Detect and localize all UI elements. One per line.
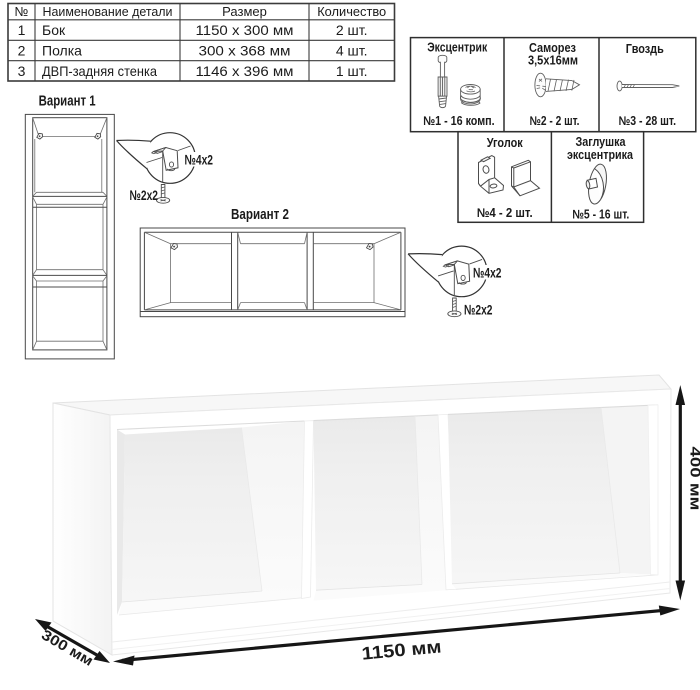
svg-text:3: 3 bbox=[18, 63, 26, 79]
svg-text:Размер: Размер bbox=[222, 4, 267, 19]
svg-text:Наименование детали: Наименование детали bbox=[43, 4, 173, 19]
svg-text:Полка: Полка bbox=[42, 42, 82, 58]
svg-text:Вариант 1: Вариант 1 bbox=[39, 93, 96, 109]
svg-text:Бок: Бок bbox=[42, 22, 66, 38]
svg-text:1: 1 bbox=[18, 22, 26, 38]
svg-text:3,5х16мм: 3,5х16мм bbox=[528, 53, 578, 67]
svg-text:300 x 368 мм: 300 x 368 мм bbox=[199, 42, 291, 58]
svg-text:№4х2: №4х2 bbox=[185, 152, 214, 168]
svg-text:Уголок: Уголок bbox=[487, 136, 524, 150]
svg-text:1150 x 300 мм: 1150 x 300 мм bbox=[196, 22, 294, 38]
svg-text:№2х2: №2х2 bbox=[130, 187, 159, 203]
svg-text:№2х2: №2х2 bbox=[464, 302, 493, 318]
svg-text:№: № bbox=[15, 4, 29, 19]
svg-text:2: 2 bbox=[18, 42, 26, 58]
svg-text:2 шт.: 2 шт. bbox=[336, 22, 368, 38]
svg-text:4 шт.: 4 шт. bbox=[336, 42, 368, 58]
svg-text:1 шт.: 1 шт. bbox=[336, 63, 368, 79]
svg-text:Количество: Количество bbox=[317, 4, 386, 19]
svg-text:№1 - 16 комп.: №1 - 16 комп. bbox=[423, 114, 495, 128]
svg-text:эксцентрика: эксцентрика bbox=[567, 148, 634, 162]
svg-text:400 мм: 400 мм bbox=[687, 447, 700, 511]
svg-text:№4 - 2 шт.: №4 - 2 шт. bbox=[477, 206, 533, 220]
svg-text:№2 - 2 шт.: №2 - 2 шт. bbox=[530, 114, 580, 128]
svg-text:Эксцентрик: Эксцентрик bbox=[427, 41, 488, 55]
svg-text:Вариант 2: Вариант 2 bbox=[231, 207, 289, 223]
svg-text:№4х2: №4х2 bbox=[473, 265, 502, 281]
svg-text:Гвоздь: Гвоздь bbox=[626, 42, 664, 56]
svg-text:1146 x 396 мм: 1146 x 396 мм bbox=[196, 63, 294, 79]
svg-text:ДВП-задняя стенка: ДВП-задняя стенка bbox=[42, 63, 157, 79]
svg-text:№5 - 16 шт.: №5 - 16 шт. bbox=[572, 207, 629, 221]
svg-text:№3 - 28 шт.: №3 - 28 шт. bbox=[619, 114, 677, 128]
